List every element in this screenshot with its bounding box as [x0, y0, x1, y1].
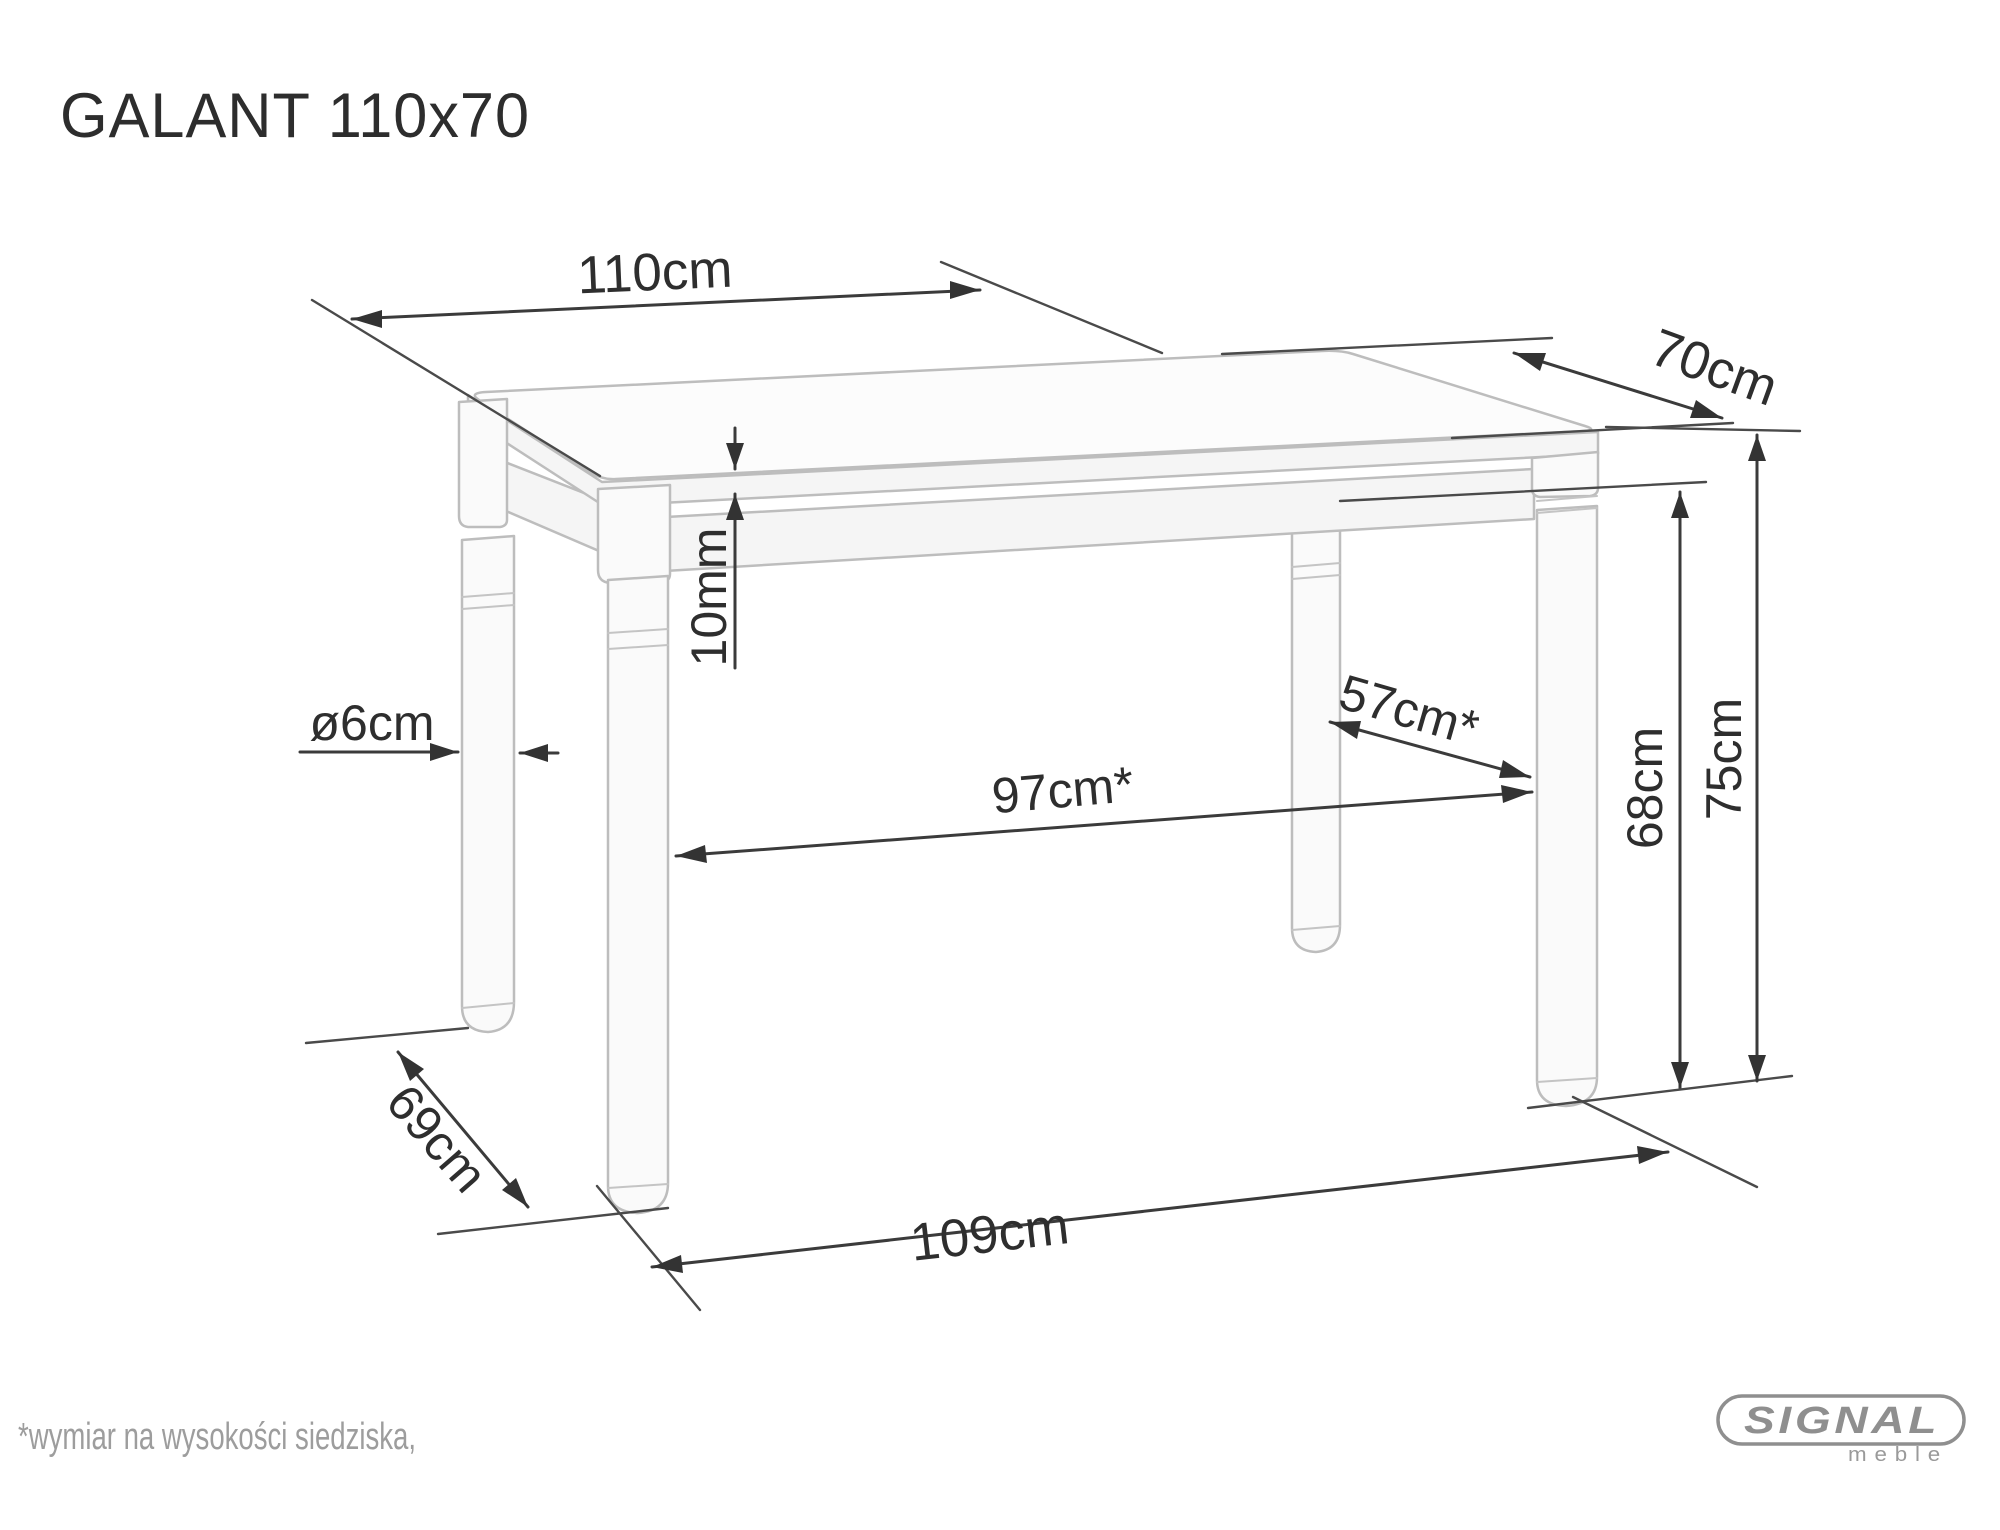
table-leg-front-right: [1537, 506, 1597, 1106]
corner-block-back-left: [459, 399, 507, 527]
dimension-top-width-arrow-left: [352, 310, 382, 328]
dimension-top-depth-arrow-lower: [1690, 400, 1722, 418]
dimension-top-depth-extension-back: [1222, 338, 1552, 354]
dimension-outer-width-line: [652, 1152, 1668, 1267]
dimension-inner-width-arrow-right: [1501, 785, 1532, 803]
dimension-leg-diameter: ø6cm: [300, 695, 558, 762]
dimension-total-height-arrow-bottom: [1748, 1055, 1766, 1081]
dimension-outer-width-arrow-right: [1637, 1146, 1668, 1164]
dimension-inner-width-arrow-left: [676, 845, 707, 863]
brand-logo-wordmark: SIGNAL: [1744, 1400, 1940, 1442]
dimension-top-depth-arrow-upper: [1514, 353, 1546, 371]
technical-drawing: 110cm 70cm 10mm ø6cm: [0, 0, 2000, 1530]
dimension-top-depth-label: 70cm: [1643, 318, 1785, 418]
dimension-inner-width-label: 97cm*: [990, 756, 1136, 824]
dimension-outer-depth-extension-upper: [306, 1028, 468, 1043]
footnote: *wymiar na wysokości siedziska,: [18, 1416, 416, 1458]
dimension-top-thickness-label: 10mm: [681, 528, 737, 667]
page-title: GALANT 110x70: [60, 81, 530, 151]
dimension-outer-width-extension-right: [1573, 1097, 1757, 1187]
brand-logo-subtitle: meble: [1848, 1444, 1948, 1466]
dimension-total-height-label: 75cm: [1696, 698, 1752, 820]
dimension-outer-width-label: 109cm: [907, 1196, 1072, 1273]
brand-logo: SIGNAL meble: [1718, 1396, 1964, 1466]
dimension-underside-height: 68cm: [1340, 482, 1706, 1088]
dimension-underside-height-label: 68cm: [1617, 727, 1673, 849]
table-leg-back-right: [1292, 526, 1340, 952]
dimension-top-width-extension-right: [941, 262, 1162, 353]
table-leg-front-left: [608, 576, 668, 1213]
product-dimension-sheet: 110cm 70cm 10mm ø6cm: [0, 0, 2000, 1530]
dimension-underside-height-arrow-bottom: [1671, 1062, 1689, 1088]
dimension-top-width-label: 110cm: [576, 240, 734, 306]
dimension-outer-width: 109cm: [597, 1097, 1757, 1310]
dimension-inner-depth-arrow-lower: [1499, 760, 1530, 778]
dimension-top-width-arrow-right: [950, 281, 980, 299]
dimension-total-height-arrow-top: [1748, 435, 1766, 461]
dimension-inner-depth: 57cm*: [1330, 664, 1530, 778]
table-leg-back-left: [462, 536, 514, 1032]
corner-block-front-left: [598, 485, 670, 583]
dimension-underside-height-arrow-top: [1671, 492, 1689, 518]
dimension-leg-diameter-label: ø6cm: [310, 695, 435, 751]
dimension-outer-depth-label: 69cm: [376, 1074, 498, 1203]
dimension-leg-diameter-arrow-left: [520, 744, 548, 762]
dimension-inner-width: 97cm*: [676, 756, 1532, 863]
